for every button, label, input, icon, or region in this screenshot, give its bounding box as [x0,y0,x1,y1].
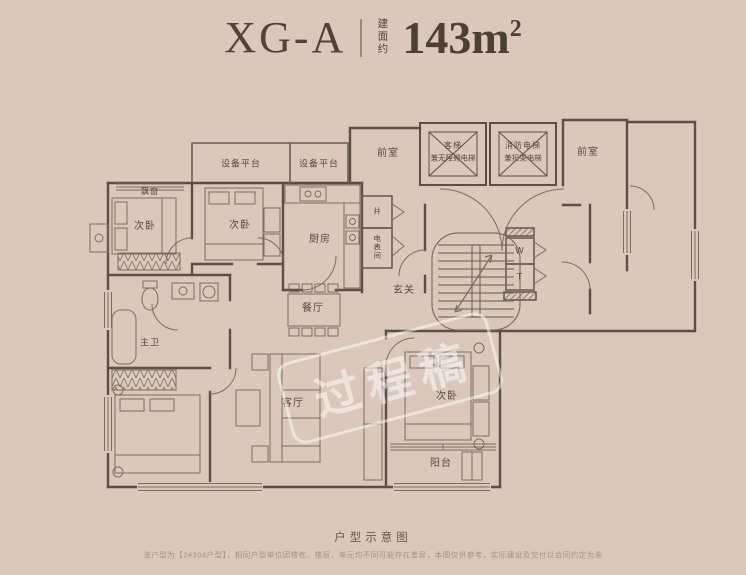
label-shaft-w: W [515,247,525,256]
label-front-room-left: 前室 [377,149,399,159]
label-kitchen: 厨房 [309,235,331,245]
label-master-bath: 主卫 [140,339,160,348]
label-equipment-platform-2: 设备平台 [299,160,339,169]
floorplan-page: XG-A 建面约 143m2 [0,0,746,575]
label-passenger-elevator-line2: 兼无障碍电梯 [431,154,476,162]
plan-disclaimer: 该户型为【2#304户型】，相同户型单位因楼栋、楼层、单元均不同可能存在差异，本… [143,550,603,561]
label-equipment-platform-1: 设备平台 [221,160,261,169]
label-foyer: 玄关 [393,286,415,296]
label-dining: 餐厅 [302,304,324,314]
label-shaft-small: 井 [373,207,381,215]
label-balcony: 阳台 [430,459,452,469]
floor-plan-drawing [0,0,746,575]
label-meter-room: 电表间 [373,234,381,260]
label-fire-elevator-line1: 消防电梯 [505,142,541,150]
label-bedroom-top-left: 次卧 [134,222,156,232]
plan-caption: 户型示意图 [334,529,412,545]
label-front-room-right: 前室 [577,148,599,158]
plan-walls [108,120,695,487]
label-bedroom-top-mid: 次卧 [229,221,251,231]
label-passenger-elevator-line1: 客梯 [444,142,462,150]
label-bay-window: 飘窗 [141,188,159,196]
label-fire-elevator-line2: 兼担架电梯 [504,154,542,162]
label-shaft-t: T [517,273,524,282]
